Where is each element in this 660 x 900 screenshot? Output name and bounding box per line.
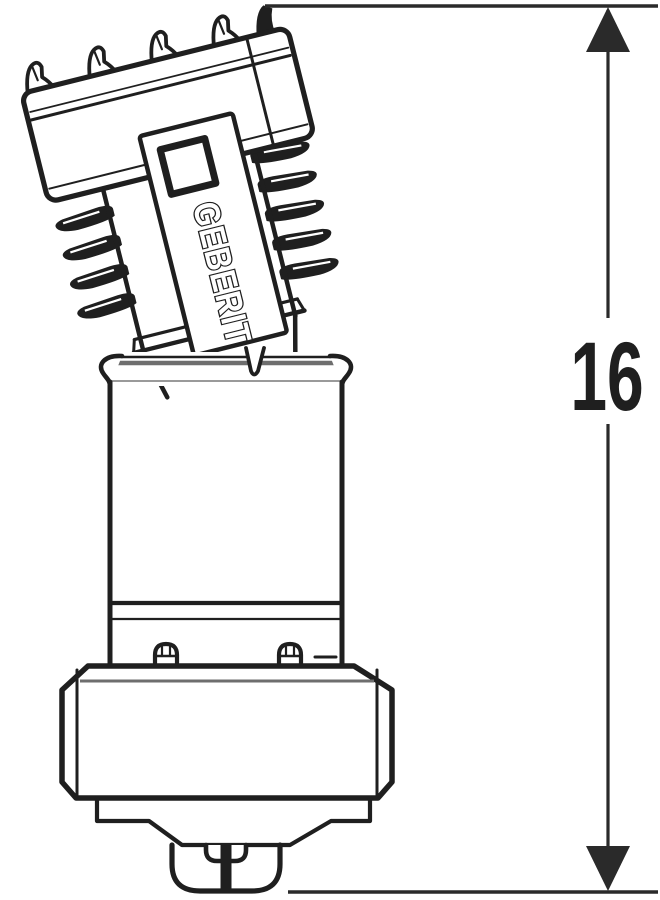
brand-square-mark [160,139,216,195]
drawing-canvas: GEBERIT [0,0,660,900]
dimension-value: 16 [570,322,643,431]
union-nut [62,666,392,798]
outlet-keyhole-stem [221,845,232,891]
dimension-arrow-up-icon [586,7,630,52]
angled-inlet-connector: GEBERIT [15,1,367,414]
outlet-taper [97,798,370,845]
dimension-arrow-down-icon [586,846,630,891]
outlet-spout [97,798,370,891]
technical-drawing: GEBERIT [0,0,660,900]
straight-pipe [101,348,351,666]
locking-pins [155,644,336,666]
